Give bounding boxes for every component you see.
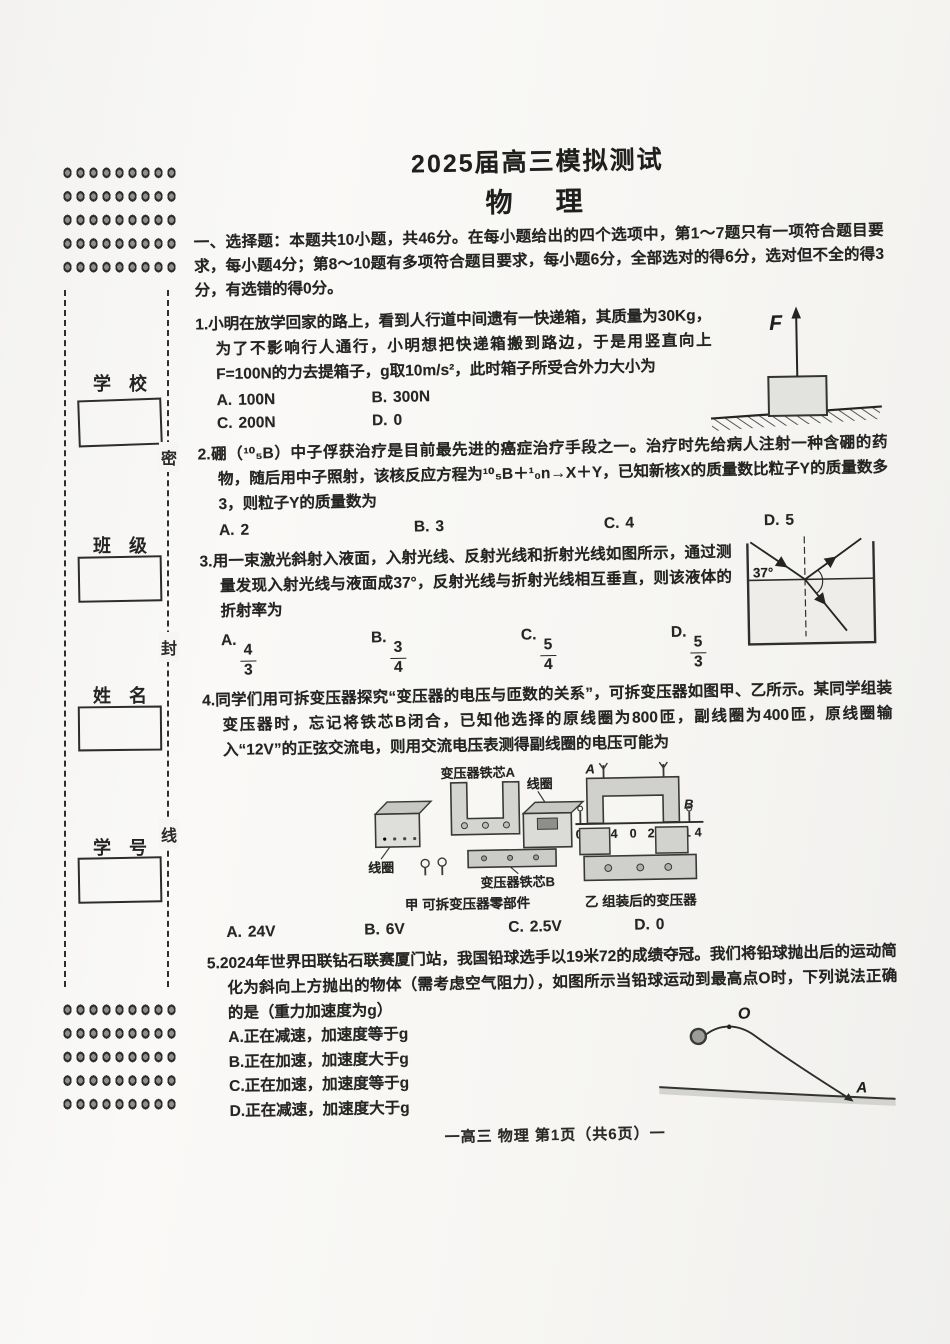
small-coil-hole [537,818,557,829]
option-text: 正在加速，加速度大于g [244,1051,409,1071]
option-text: 2.5V [530,918,562,936]
option-label: A. [219,522,235,539]
core-bolt [534,855,539,860]
q3-stem: 3.用一束激光斜射入液面，入射光线、反射光线和折射光线如图所示，通过测量发现入射… [199,540,732,625]
force-arrow [796,316,797,377]
figure-caption-yi: 乙 组装后的变压器 [585,892,698,910]
assembled-coil [580,828,610,855]
force-label: F [769,312,783,335]
landing-label: A [855,1080,867,1097]
apex-label: O [738,1006,751,1023]
seal-char-xian: 线 [159,819,179,849]
q4-option-a: A.24V [226,922,364,943]
q2-option-b: B.3 [414,515,604,536]
option-label: C. [508,919,524,936]
option-label: B. [371,389,387,406]
core-bolt [482,856,487,861]
option-label: D. [671,624,687,641]
small-coil-top-face [523,802,583,814]
option-label: A. [216,392,232,409]
q3-option-b: B.34 [371,627,522,677]
class-field-label: 班 级 [78,532,162,558]
question-3: 3.用一束激光斜射入液面，入射光线、反射光线和折射光线如图所示，通过测量发现入射… [199,537,891,680]
question-2: 2.硼（¹⁰₅B）中子俘获治疗是目前最先进的癌症治疗手段之一。治疗时先给病人注射… [197,430,889,541]
q1-option-a: A.100N [216,389,371,410]
option-text: 6V [386,921,405,938]
q4-stem: 4.同学们用可拆变压器探究“变压器的电压与匝数的关系”，可拆变压器如图甲、乙所示… [202,676,893,764]
q1-stem: 1.小明在放学回家的路上，看到人行道中间遗有一快递箱，其质量为30Kg，为了不影… [195,303,712,387]
option-label: A. [228,1029,244,1046]
inverted-u-core [587,777,680,824]
fraction: 43 [240,642,257,679]
core-bolt [461,823,467,829]
core-bolt [665,864,672,871]
core-bolt [605,865,612,872]
incident-ray-end [784,564,805,579]
q2-option-a: A.2 [219,519,414,541]
school-field-label: 学 校 [78,370,162,396]
option-label: C. [604,515,620,532]
q2-option-c: C.4 [604,512,764,533]
exam-body: 2025届高三模拟测试 物 理 一、选择题：本题共10小题，共46分。在每小题给… [192,136,900,1152]
option-label: B. [364,922,380,939]
core-b-label-leader [510,867,518,874]
incident-ray [750,542,785,567]
q3-figure-refraction: 37° [739,531,883,654]
coil-label-leader [381,848,390,860]
option-label: B. [414,518,430,535]
seal-char-feng: 封 [159,632,179,662]
option-label: D. [230,1103,246,1120]
q4-option-d: D.0 [634,916,664,935]
left-coil-top-face [375,802,431,815]
name-field-label: 姓 名 [78,682,162,708]
terminal-a-label: A [584,762,595,777]
seal-char-mi: 密 [159,442,179,472]
name-field-box [78,706,162,752]
seal-dashed-line-left [64,290,66,987]
option-text: 5 [785,512,794,529]
perforation-dots-bottom [61,998,179,1120]
option-text: 300N [393,388,430,406]
student-number-field-box [78,856,163,903]
question-4: 4.同学们用可拆变压器探究“变压器的电压与匝数的关系”，可拆变压器如图甲、乙所示… [202,676,897,943]
option-label: B. [229,1054,245,1071]
section-instructions: 一、选择题：本题共10小题，共46分。在每小题给出的四个选项中，第1～7题只有一… [194,219,885,304]
option-label: A. [226,924,242,941]
q3-option-d: D.53 [671,623,707,671]
option-text: 24V [248,924,276,942]
page-footer: 一高三 物理 第1页（共6页）一 [210,1118,900,1152]
fraction: 34 [390,640,407,677]
core-bolt [482,823,488,829]
option-text: 3 [435,518,444,535]
question-1: 1.小明在放学回家的路上，看到人行道中间遗有一快递箱，其质量为30Kg，为了不影… [195,300,887,434]
terminal-pin-head [578,807,583,812]
q1-option-c: C.200N [217,412,372,433]
option-text: 0 [656,916,665,933]
q4-option-c: C.2.5V [508,917,634,937]
option-label: C. [229,1078,245,1095]
option-text: 200N [238,414,275,432]
reflected-ray [805,558,835,580]
option-text: 正在减速，加速度大于g [245,1100,410,1120]
q3-option-c: C.54 [521,624,672,674]
q4-option-b: B.6V [364,919,508,940]
question-5: 5.2024年世界田联钻石联赛厦门站，我国铅球选手以19米72的成绩夺冠。我们将… [207,939,900,1125]
screw-icon [421,860,429,868]
terminal-b-label: B [684,797,694,812]
angle-label: 37° [753,565,774,580]
exam-page-scan: 学 校 密 班 级 封 姓 名 线 学 号 2025届高三模拟测试 物 理 一、… [0,0,950,1344]
option-label: C. [217,415,233,432]
left-coil-body [375,814,420,848]
apex-point [727,1025,732,1030]
core-b-label: 变压器铁芯B [480,874,555,890]
coil-label-top: 线圈 [527,777,553,792]
option-label: D. [764,512,780,529]
reflected-ray-end [832,538,861,559]
option-label: A. [221,632,237,649]
coil-label-left: 线圈 [368,860,394,875]
fraction: 53 [689,634,706,671]
option-text: 100N [238,391,275,409]
option-label: D. [372,412,388,429]
fraction: 54 [540,637,557,674]
option-label: D. [634,917,650,934]
q1-figure-box-on-ground: F [707,302,885,437]
q2-stem: 2.硼（¹⁰₅B）中子俘获治疗是目前最先进的癌症治疗手段之一。治疗时先给病人注射… [197,430,888,518]
option-text: 0 [393,412,402,429]
q4-figure-transformer: 线圈 变压器铁芯A 线圈 [366,759,709,917]
school-field-box [77,398,163,448]
q5-figure-projectile: O A [628,997,898,1124]
q2-option-d: D.5 [764,512,794,531]
force-arrowhead [791,306,801,318]
assembled-coil [656,827,688,854]
trajectory-curve [706,1025,849,1102]
core-bolt [508,856,513,861]
q4-figure-area: 线圈 变压器铁芯A 线圈 [203,755,896,920]
figure-caption-jia: 甲 可拆变压器零部件 [405,895,531,913]
option-text: 2 [240,522,249,539]
q1-option-d: D.0 [372,412,402,431]
core-bolt [503,822,509,828]
box [768,376,827,416]
option-label: B. [371,629,387,646]
class-field-box [78,555,163,602]
option-text: 4 [625,515,634,532]
option-text: 正在加速，加速度等于g [245,1075,410,1095]
q1-option-b: B.300N [371,388,430,407]
shot-put-ball [691,1029,706,1044]
screw-icon [438,858,446,866]
perforation-dots-top [61,161,179,280]
option-text: 正在减速，加速度等于g [244,1026,409,1046]
core-bolt [637,864,644,871]
core-a-label: 变压器铁芯A [440,765,515,781]
option-label: C. [521,626,537,643]
q3-option-a: A.43 [221,629,372,679]
